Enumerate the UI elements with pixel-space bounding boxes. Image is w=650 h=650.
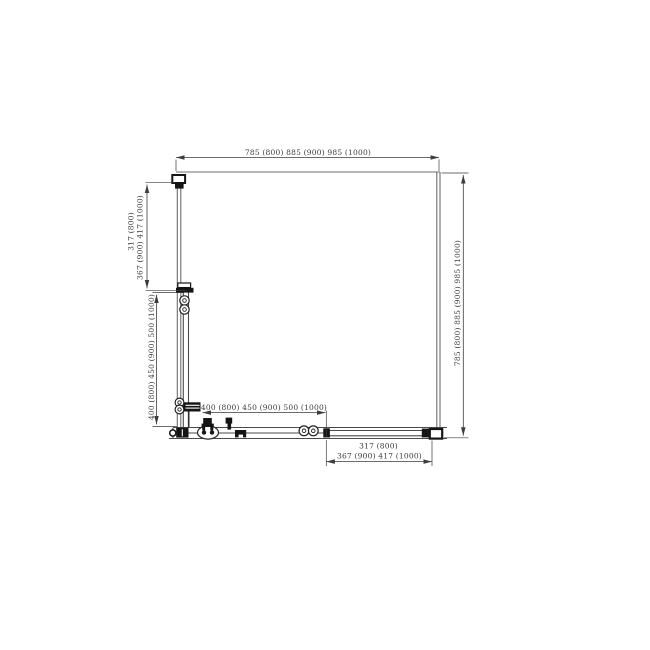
bottom-right-label-line1: 317 (800) <box>359 442 398 451</box>
bottom-right-wall-profile <box>430 429 442 439</box>
corner-wheel-housing <box>198 426 219 439</box>
corner-wheel-dot-2 <box>210 430 214 434</box>
bottom-rail-assembly <box>169 418 447 440</box>
dimension-bottom-right: 317 (800) 367 (900) 417 (1000) <box>326 440 432 466</box>
rail-bracket-notch <box>239 435 243 438</box>
anti-jump-block-head <box>203 418 212 424</box>
bottom-door-roller-2 <box>308 426 318 436</box>
left-door-upper-roller-1 <box>180 296 189 305</box>
anti-jump-block-base <box>202 424 214 427</box>
door-stopper-stem <box>228 423 232 429</box>
corner-wheel-dot-1 <box>202 430 206 434</box>
bottom-right-label-line2: 367 (900) 417 (1000) <box>337 452 422 461</box>
top-width-label: 785 (800) 885 (900) 985 (1000) <box>245 148 371 157</box>
left-door-assembly <box>175 283 200 428</box>
anti-jump-block-leg-2 <box>210 427 213 431</box>
left-door-upper-roller-2 <box>180 305 189 314</box>
left-upper-label-line2: 367 (900) 417 (1000) <box>136 195 145 280</box>
corner-knob <box>170 430 176 436</box>
drawing-canvas: 785 (800) 885 (900) 985 (1000) 785 (800)… <box>0 0 650 650</box>
left-door-lower-roller-2 <box>175 405 184 414</box>
right-height-label: 785 (800) 885 (900) 985 (1000) <box>453 240 462 366</box>
door-stopper-head <box>226 418 233 424</box>
dimension-right-height: 785 (800) 885 (900) 985 (1000) <box>442 173 469 438</box>
bottom-door-roller-1 <box>299 426 309 436</box>
anti-jump-block-leg-1 <box>202 427 205 431</box>
glass-panels <box>176 172 440 429</box>
left-door-top-bracket <box>178 283 191 288</box>
top-left-wall-profile-insert <box>175 183 184 188</box>
bottom-inner-label: 400 (800) 450 (900) 500 (1000) <box>201 403 327 412</box>
top-left-wall-profile <box>172 175 185 183</box>
shower-enclosure-drawing: 785 (800) 885 (900) 985 (1000) 785 (800)… <box>0 0 650 650</box>
corner-profiles <box>172 175 185 189</box>
left-lower-label: 400 (800) 450 (900) 500 (1000) <box>147 294 156 420</box>
dimension-top-width: 785 (800) 885 (900) 985 (1000) <box>176 148 439 171</box>
left-upper-label-line1: 317 (800) <box>126 212 135 251</box>
left-door-guide-block <box>184 402 201 411</box>
